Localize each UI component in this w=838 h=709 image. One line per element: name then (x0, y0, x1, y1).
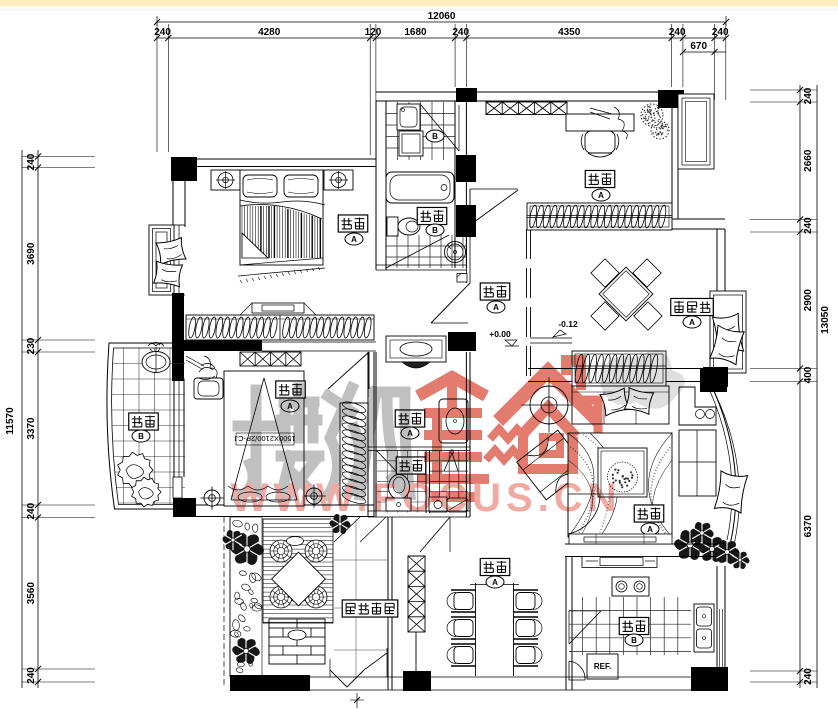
svg-text:240: 240 (26, 667, 37, 684)
svg-text:240: 240 (803, 87, 814, 104)
svg-text:+0.00: +0.00 (489, 329, 511, 339)
svg-text:4350: 4350 (558, 27, 581, 38)
svg-text:B: B (432, 132, 438, 141)
svg-text:11570: 11570 (5, 407, 16, 435)
svg-text:REF.: REF. (594, 662, 611, 671)
svg-text:WWW.FOCUS.CN: WWW.FOCUS.CN (230, 476, 621, 520)
svg-text:240: 240 (803, 217, 814, 234)
svg-text:240: 240 (26, 153, 37, 170)
svg-text:400: 400 (803, 366, 814, 383)
svg-text:3370: 3370 (26, 417, 37, 440)
svg-text:B: B (138, 432, 144, 441)
svg-text:A: A (689, 318, 695, 327)
svg-text:230: 230 (26, 337, 37, 354)
svg-text:2660: 2660 (803, 149, 814, 172)
svg-text:B: B (631, 636, 637, 645)
svg-text:4280: 4280 (258, 27, 281, 38)
svg-text:A: A (493, 303, 499, 312)
svg-text:3560: 3560 (26, 582, 37, 605)
svg-text:A: A (598, 191, 604, 200)
svg-text:A: A (647, 525, 653, 534)
svg-text:120: 120 (365, 27, 382, 38)
svg-text:6370: 6370 (803, 515, 814, 538)
svg-text:240: 240 (26, 502, 37, 519)
svg-text:-0.12: -0.12 (558, 319, 578, 329)
svg-text:B: B (432, 226, 438, 235)
svg-text:1680: 1680 (404, 27, 427, 38)
svg-text:240: 240 (803, 668, 814, 685)
svg-text:A: A (351, 235, 357, 244)
svg-text:2900: 2900 (803, 289, 814, 312)
svg-text:A: A (492, 578, 498, 587)
svg-text:12060: 12060 (428, 11, 456, 22)
svg-text:670: 670 (690, 41, 707, 52)
svg-text:13050: 13050 (820, 306, 831, 334)
svg-text:3690: 3690 (26, 242, 37, 265)
